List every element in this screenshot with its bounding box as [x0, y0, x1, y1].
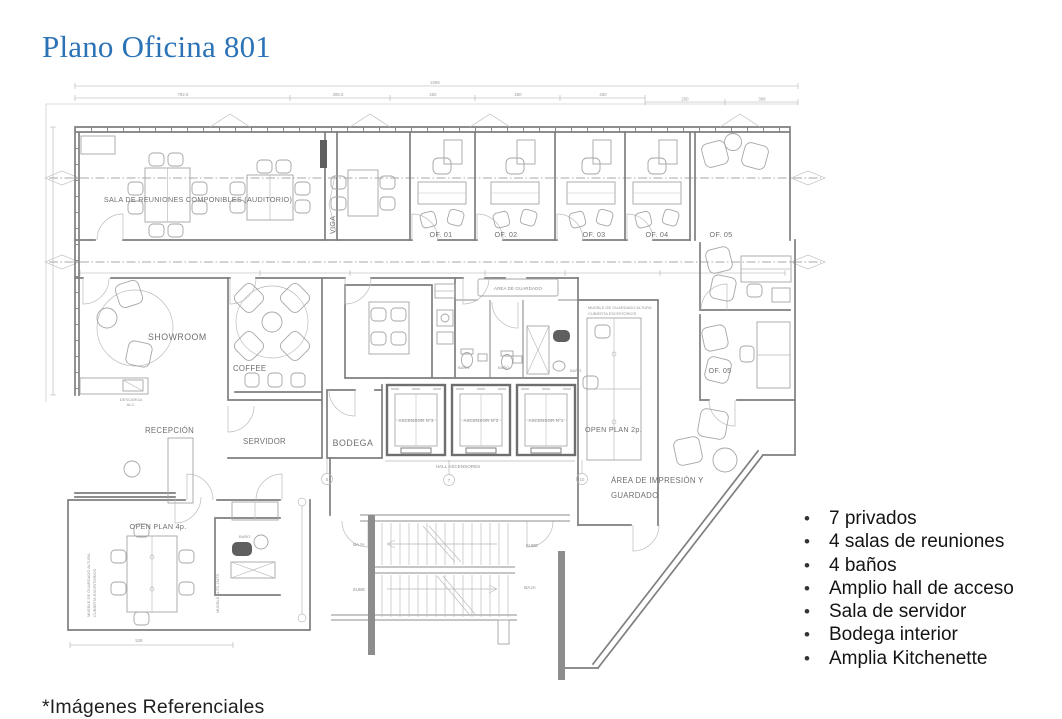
feature-list: 7 privados 4 salas de reuniones 4 baños …	[798, 507, 1060, 670]
room-label-bano3: BAÑO	[570, 368, 581, 373]
room-label-bano1: BAÑO	[458, 365, 469, 370]
note-mueble-1: MUEBLE DE GUARDADO ALTURA	[588, 305, 652, 310]
elevator-label-1: ASCENSOR N°1	[528, 418, 563, 423]
grid-bubble-label: 5	[326, 477, 329, 482]
sala-furniture	[81, 136, 395, 237]
room-label-of02: OF. 02	[495, 230, 518, 239]
room-label-bano2: BAÑO	[498, 365, 509, 370]
dim-seg: 250	[514, 92, 522, 97]
of05-furniture	[700, 134, 791, 389]
room-label-coffee: COFFEE	[233, 364, 266, 373]
room-label-of01: OF. 01	[430, 230, 453, 239]
note-alc: ALC.	[127, 402, 136, 407]
grid-bubble-label: 7	[448, 478, 451, 483]
room-label-open2: OPEN PLAN 2p.	[585, 425, 642, 434]
list-item: Amplia Kitchenette	[798, 647, 1060, 670]
bath-fixtures	[461, 279, 570, 374]
dim-bottom: 538	[135, 638, 143, 643]
room-label-of05b: OF. 05	[709, 366, 732, 375]
stairs	[331, 515, 570, 680]
note-mueble-v1: MUEBLE DE GUARDADO ALTURA	[86, 553, 91, 617]
note-mueble-v2: CUBIERTA ESCRITORIOS	[92, 568, 97, 617]
list-item-text: Amplio hall de acceso	[829, 578, 1014, 599]
room-label-impresion-2: GUARDADO	[611, 491, 658, 500]
room-label-guardado: AREA DE GUARDADO	[494, 286, 542, 291]
page-title: Plano Oficina 801	[42, 29, 271, 65]
list-item: 4 salas de reuniones	[798, 530, 1060, 553]
footnote: *Imágenes Referenciales	[42, 696, 264, 719]
room-label-of05a: OF. 05	[710, 230, 733, 239]
room-label-bodega: BODEGA	[333, 438, 374, 448]
open-plan-4p-furniture	[111, 502, 278, 625]
showroom-furniture	[97, 279, 173, 368]
grid-bubbles: 5 7 10	[298, 458, 588, 622]
list-item-text: Sala de servidor	[829, 601, 966, 622]
grid-bubble-label: 10	[580, 477, 585, 482]
list-item: Bodega interior	[798, 623, 1060, 646]
office-furniture	[418, 140, 681, 229]
dim-seg: 250	[681, 97, 689, 102]
dim-seg: 308	[758, 97, 766, 102]
room-label-of03: OF. 03	[583, 230, 606, 239]
list-item-text: 4 baños	[829, 555, 897, 576]
stair-label-baja-1: BAJA	[353, 542, 365, 547]
dim-seg: 285.5	[333, 92, 344, 97]
centerlines	[45, 171, 825, 269]
dim-seg: 250	[599, 92, 607, 97]
stair-label-sube-1: SUBE	[526, 543, 539, 548]
elevator-label-3: ASCENSOR N°3	[398, 418, 433, 423]
room-label-bano4: BAÑO	[239, 534, 250, 539]
room-label-open4: OPEN PLAN 4p.	[129, 522, 186, 531]
floor-plan: 2266 782.5 285.5 250 250 250 250 308 538	[35, 70, 835, 690]
stair-label-sube-2: SUBE	[353, 587, 366, 592]
room-label-impresion-1: ÁREA DE IMPRESIÓN Y	[611, 476, 704, 485]
elevators	[385, 385, 575, 461]
room-label-showroom: SHOWROOM	[148, 332, 207, 342]
elevator-label-2: ASCENSOR N°2	[463, 418, 498, 423]
list-item: Amplio hall de acceso	[798, 577, 1060, 600]
note-mueble-2: CUBIERTA ESCRITORIOS	[588, 311, 637, 316]
list-item: 7 privados	[798, 507, 1060, 530]
list-item-text: Bodega interior	[829, 624, 958, 645]
kitchenette-room	[369, 284, 455, 354]
room-label-viga: VIGA	[328, 216, 337, 234]
note-mueble-alto: MUEBLE ALTO 2MTS	[215, 573, 220, 613]
stair-label-baja-2: BAJA	[524, 585, 536, 590]
room-label-sala: SALA DE REUNIONES COMPONIBLES (AUDITORIO…	[104, 195, 292, 204]
list-item: 4 baños	[798, 554, 1060, 577]
list-item-text: 4 salas de reuniones	[829, 531, 1004, 552]
list-item-text: Amplia Kitchenette	[829, 648, 987, 669]
dim-seg: 782.5	[178, 92, 189, 97]
list-item: Sala de servidor	[798, 600, 1060, 623]
dim-total: 2266	[430, 80, 440, 85]
open-plan-2p-furniture	[583, 318, 641, 460]
printing-lounge	[673, 408, 737, 472]
room-label-of04: OF. 04	[646, 230, 669, 239]
dim-seg: 250	[429, 92, 437, 97]
floor-plan-drawing: 2266 782.5 285.5 250 250 250 250 308 538	[35, 70, 835, 690]
list-item-text: 7 privados	[829, 508, 917, 529]
room-label-hall: HALL ASCENSORES	[436, 464, 481, 469]
room-label-servidor: SERVIDOR	[243, 437, 286, 446]
room-label-recepcion: RECEPCIÓN	[145, 426, 194, 435]
